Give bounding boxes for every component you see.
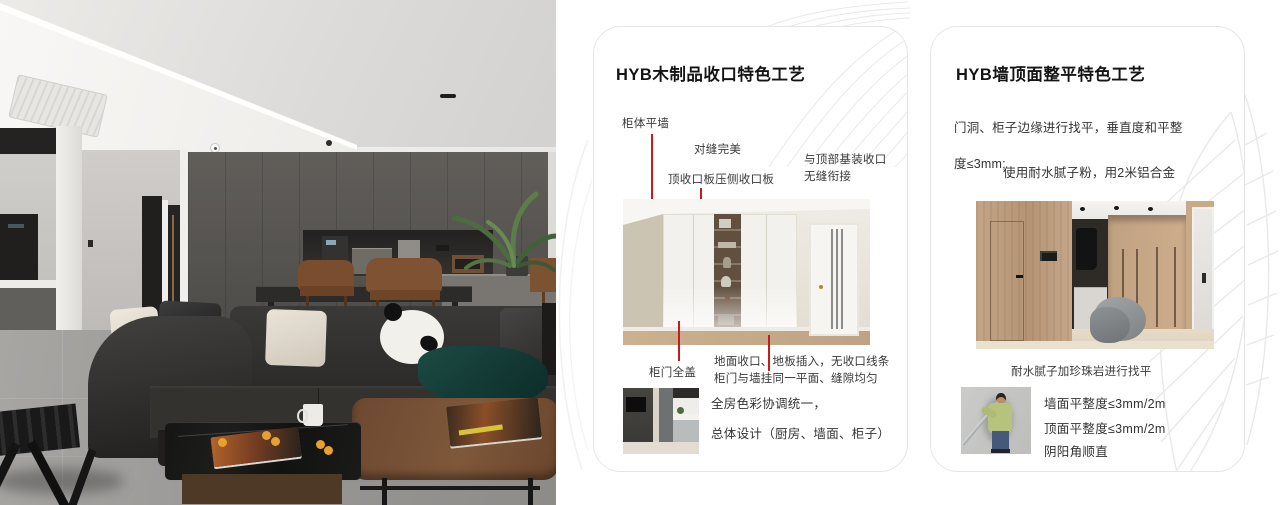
paragraph-line: 度≤3mm; [954, 157, 1006, 171]
callout-top-trim-board: 顶收口板压侧收口板 [668, 171, 774, 187]
lemon [324, 446, 333, 455]
figure-caption: 耐水腻子加珍珠岩进行找平 [1011, 363, 1151, 379]
shelf-item [721, 276, 731, 287]
wall-pillar [56, 126, 82, 332]
wood-room-photo [976, 201, 1214, 349]
leaf-pattern [1245, 85, 1280, 455]
floor [623, 442, 699, 454]
dining-chair-seat [300, 286, 354, 296]
table-leg [528, 478, 533, 505]
kitchen-base-cabinet [0, 288, 58, 332]
shelf-item [723, 257, 731, 268]
door-knob [819, 285, 823, 289]
spec-bullet: 墙面平整度≤3mm/2m [1044, 393, 1166, 412]
lemon [271, 437, 280, 446]
wood-floor [976, 341, 1214, 349]
table-wood-base [182, 474, 342, 504]
cream-pillow [265, 309, 327, 367]
downlight [1114, 206, 1119, 210]
table-stretcher [360, 486, 540, 490]
cabinet-render-figure [623, 199, 870, 345]
built-in-appliance [0, 214, 38, 282]
house-plant [438, 178, 556, 290]
summary-text: 总体设计（厨房、墙面、柜子） [711, 423, 890, 442]
paragraph-line: 门洞、柜子边缘进行找平，垂直度和平整 [954, 121, 1183, 135]
thermostat-panel [1040, 251, 1057, 261]
spot-light [326, 140, 332, 146]
callout-cabinet-flush-wall: 柜体平墙 [622, 115, 669, 131]
spec-bullet: 阴阳角顺直 [1044, 441, 1108, 460]
card-title: HYB木制品收口特色工艺 [616, 61, 805, 85]
card-wall-leveling-craft: HYB墙顶面整平特色工艺 门洞、柜子边缘进行找平，垂直度和平整 度≤3mm; 使… [930, 26, 1245, 472]
wall-switch [88, 240, 93, 247]
callout-ceiling-joint: 无缝衔接 [804, 168, 851, 184]
white-mug [303, 404, 323, 426]
fan-line-pattern [760, 0, 910, 27]
glass-door-handle [1202, 273, 1206, 283]
worker-shoes [991, 449, 1010, 453]
table-leg [382, 478, 387, 505]
callout-full-cover-door: 柜门全盖 [649, 364, 696, 380]
paragraph-line: 使用耐水腻子粉，用2米铝合金 [1003, 166, 1175, 180]
kitchen-soffit [0, 128, 56, 154]
kitchen-counter [0, 280, 58, 288]
figure-caption: 地面收口、地板插入，无收口线条 [714, 353, 890, 369]
card-title: HYB墙顶面整平特色工艺 [956, 61, 1145, 85]
tv-screen [626, 397, 646, 412]
worker-jeans [992, 431, 1009, 450]
door-handle [1016, 275, 1023, 278]
base-cabinet [673, 420, 699, 442]
white-interior-door [809, 223, 859, 336]
kitchen-corridor-photo [623, 388, 699, 454]
living-room-photo [0, 0, 556, 505]
card-woodwork-craft: HYB木制品收口特色工艺 柜体平墙 对缝完美 顶收口板压侧收口板 与顶部基装收口… [593, 26, 908, 472]
callout-ceiling-joint: 与顶部基装收口 [804, 151, 887, 167]
handle-groove [1156, 247, 1158, 327]
page: HYB木制品收口特色工艺 柜体平墙 对缝完美 顶收口板压侧收口板 与顶部基装收口… [0, 0, 1280, 505]
upper-appliance [673, 388, 699, 398]
lemon [262, 431, 271, 440]
small-plant [677, 407, 684, 414]
bean-bag [1090, 307, 1130, 343]
summary-text: 全房色彩协调统一， [711, 393, 826, 412]
handle-groove [1174, 247, 1176, 327]
shelf-item [718, 242, 736, 248]
dining-chair-seat [370, 290, 440, 300]
leaf-pattern [548, 140, 594, 470]
downlight [1148, 207, 1153, 211]
door-stripe [841, 229, 843, 329]
figure-caption: 柜门与墙挂同一平面、缝隙均匀 [714, 370, 878, 386]
door-stripe [831, 229, 833, 329]
flush-wood-door [990, 221, 1024, 341]
linear-downlight [440, 94, 456, 98]
spec-bullet: 顶面平整度≤3mm/2m [1044, 418, 1166, 437]
hanging-clothes [1076, 228, 1097, 270]
callout-line [678, 321, 680, 361]
downlight [1080, 207, 1085, 211]
dining-chair [366, 258, 442, 292]
shelf-item [719, 219, 731, 228]
door-stripe [836, 229, 838, 329]
worker-leveling-photo [961, 387, 1031, 454]
lemon [218, 438, 227, 447]
callout-seam-perfect: 对缝完美 [694, 141, 741, 157]
panda-pillow-ear [384, 303, 402, 321]
